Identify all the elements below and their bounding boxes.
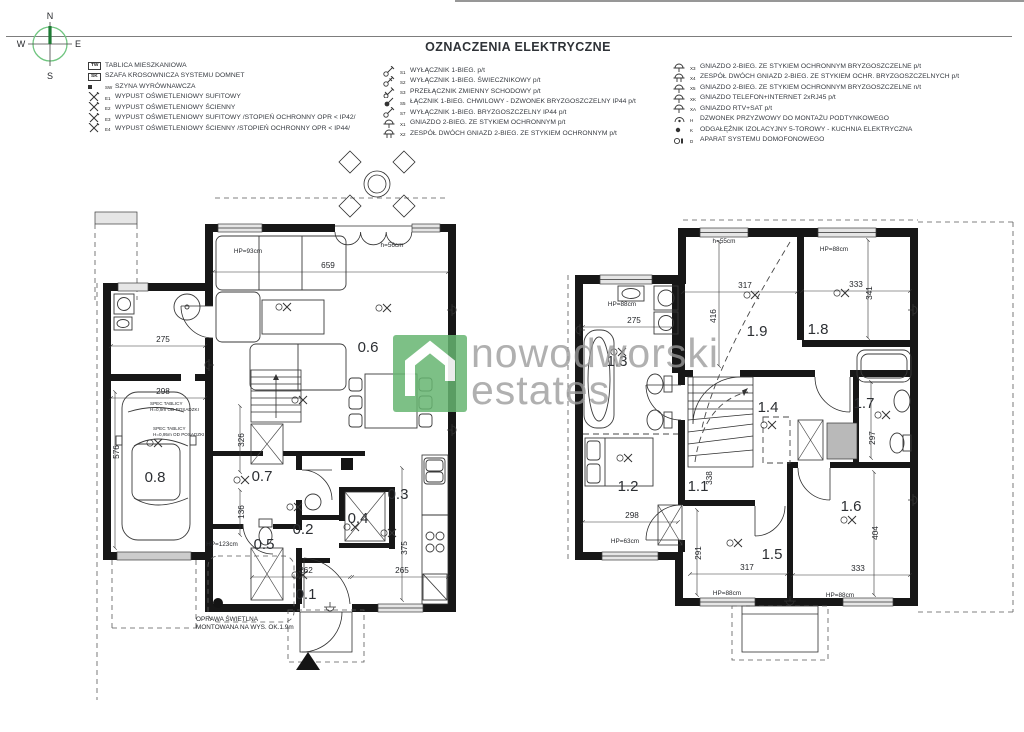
plan-label-338: 338 [705, 471, 714, 485]
plan-label-hp=63cm: HP=63cm [611, 538, 639, 545]
plan-label-h=0,9m-od-posadzki: H=0,9m OD POSADZKI [150, 407, 199, 412]
shaft [798, 420, 823, 460]
hob [426, 532, 444, 552]
staircase [251, 370, 301, 422]
door-1.7 [815, 377, 850, 412]
watermark-text: nowodworski estates [471, 335, 719, 408]
plan-label-341: 341 [865, 286, 874, 300]
watermark-line2: estates [471, 372, 719, 408]
room-label-1.2: 1.2 [618, 478, 639, 495]
watermark-logo [393, 335, 467, 412]
balcony [732, 606, 828, 660]
washing-machine [114, 294, 134, 314]
plan-label-h=55cm: h=55cm [713, 238, 736, 245]
room-label-0.1: 0.1 [296, 586, 317, 603]
room-label-1.6: 1.6 [841, 498, 862, 515]
plan-label-659: 659 [321, 261, 335, 270]
neighbour-wall-fragment [95, 212, 137, 224]
duct [341, 458, 353, 470]
lamp-post [213, 598, 223, 608]
entry-porch [288, 610, 364, 670]
room-label-1.9: 1.9 [747, 323, 768, 340]
plan-label-275: 275 [156, 335, 170, 344]
washbasin [618, 286, 644, 301]
room-label-0.7: 0.7 [252, 468, 273, 485]
plan-label-hp=88cm: HP=88cm [713, 590, 741, 597]
plan-label-576: 576 [112, 445, 121, 459]
plan-label-spec-tablicy: SPEC TABLICY [153, 426, 186, 431]
window [118, 283, 148, 291]
driveway [112, 560, 196, 628]
plan-label-416: 416 [709, 309, 718, 323]
washbasin [305, 494, 321, 510]
room-label-0.8: 0.8 [145, 469, 166, 486]
shower [827, 423, 857, 459]
plan1-ground-floor: 0.60.70.80.30.20.40.50.16592752982622653… [95, 151, 456, 700]
plan-label-hp=88cm: HP=88cm [826, 592, 854, 599]
plan-label-montowana-na-wys.-ok.1.9m: MONTOWANA NA WYS. OK.1.9m [196, 624, 294, 631]
plan-label-375: 375 [400, 541, 409, 555]
room-label-0.3: 0.3 [388, 486, 409, 503]
plan-label-291: 291 [694, 546, 703, 560]
plan-label-spec-tablicy: SPEC TABLICY [150, 401, 183, 406]
watermark: nowodworski estates [393, 335, 719, 412]
door-utility [181, 306, 213, 338]
plan-label-404: 404 [871, 526, 880, 540]
car [116, 392, 196, 540]
plan-label-hp=88cm: HP=88cm [820, 246, 848, 253]
plan-label-333: 333 [849, 280, 863, 289]
plan-label-262: 262 [299, 566, 313, 575]
entrance-arrow [296, 652, 320, 670]
plan-label-h=0,95m-od-posadzki: H=0,95m OD POSADZKI [153, 432, 204, 437]
room-label-1.8: 1.8 [808, 321, 829, 338]
plan-label-317: 317 [740, 563, 754, 572]
room-label-1.7: 1.7 [854, 395, 875, 412]
door-1.6 [798, 468, 830, 500]
wardrobe [658, 505, 682, 545]
plan2-first-floor: 1.31.91.81.41.71.11.21.51.63173332752983… [568, 220, 1013, 660]
door-porch [302, 612, 342, 652]
washbasin [894, 390, 910, 412]
plan-label-297: 297 [868, 431, 877, 445]
plan-label-hp=88cm: HP=88cm [608, 301, 636, 308]
plan-label-298: 298 [156, 387, 170, 396]
plan-label-265: 265 [395, 566, 409, 575]
plan-label-hp=93cm: HP=93cm [234, 248, 262, 255]
kitchen-counter [422, 455, 448, 604]
room-label-0.6: 0.6 [358, 339, 379, 356]
coffee-table [262, 300, 324, 334]
room-label-0.2: 0.2 [293, 521, 314, 538]
sofa-set [216, 236, 346, 390]
plan-label-317: 317 [738, 281, 752, 290]
door-1.5 [755, 506, 785, 536]
room-label-0.5: 0.5 [254, 536, 275, 553]
plan-label-136: 136 [237, 505, 246, 519]
boiler [174, 294, 200, 320]
plan-label-298: 298 [625, 511, 639, 520]
plan-label-h=56cm: h=56cm [381, 242, 404, 249]
room-label-1.4: 1.4 [758, 399, 779, 416]
room-label-0.4: 0.4 [348, 510, 369, 527]
floor-plan-scan: { "title": "OZNACZENIA ELEKTRYCZNE", "co… [0, 0, 1024, 732]
utility-sink [114, 317, 132, 330]
terrace-table-set [339, 151, 415, 217]
plan-label-326: 326 [237, 433, 246, 447]
room-label-1.5: 1.5 [762, 546, 783, 563]
plan-label-oprawa-świetlna: OPRAWA ŚWIETLNA [196, 614, 259, 623]
toilet [890, 433, 911, 453]
garage-door [117, 552, 191, 560]
plan-label-333: 333 [851, 564, 865, 573]
plan-label-hp=123cm: HP=123cm [206, 541, 238, 548]
shaft [251, 424, 283, 464]
bathtub [857, 350, 911, 382]
plan-label-275: 275 [627, 316, 641, 325]
